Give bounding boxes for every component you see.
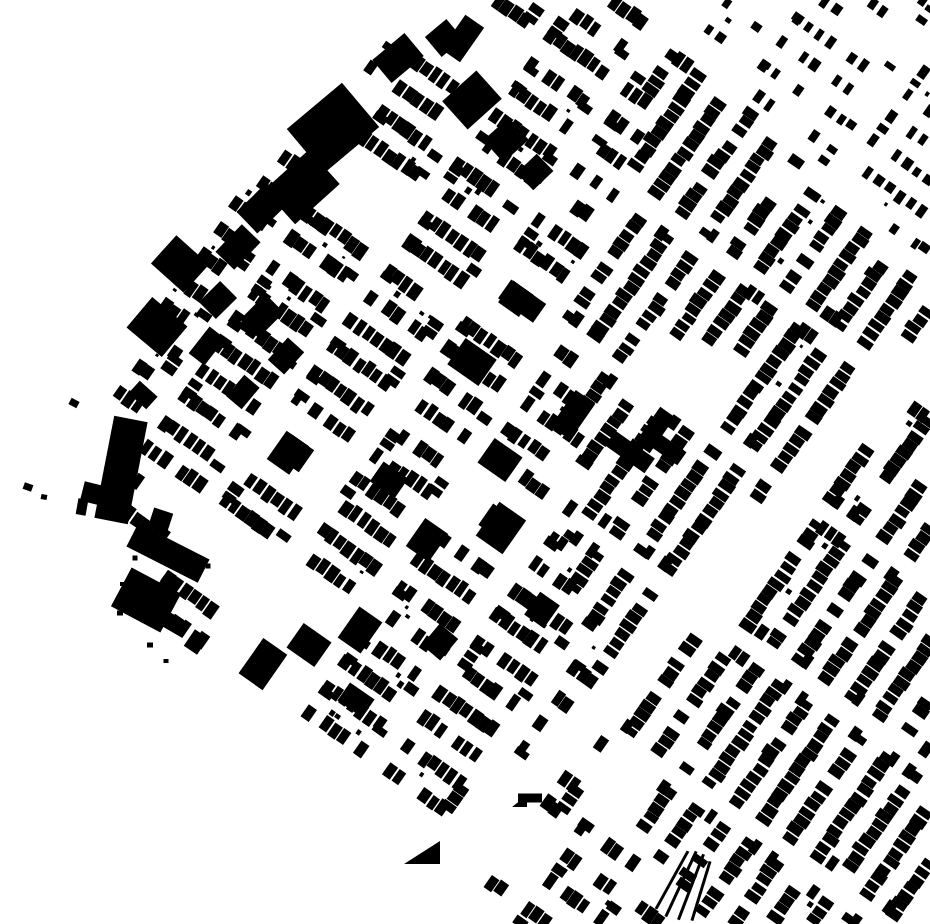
figure-ground-map (0, 0, 930, 924)
shed (211, 245, 216, 250)
house (916, 64, 930, 80)
house (630, 128, 646, 145)
house (593, 909, 610, 924)
house (924, 4, 930, 14)
house (542, 872, 559, 890)
shed (342, 256, 346, 260)
house (342, 579, 356, 595)
house (554, 635, 570, 650)
house (787, 153, 805, 170)
house (531, 212, 546, 229)
house (569, 162, 586, 180)
house (911, 166, 922, 177)
house (209, 458, 225, 473)
shed (286, 296, 291, 301)
house (457, 428, 473, 445)
house (679, 761, 695, 776)
house (842, 82, 854, 95)
shed (419, 772, 424, 778)
house (807, 129, 820, 143)
house (791, 11, 805, 25)
house (721, 0, 732, 9)
shed (393, 290, 401, 298)
house (775, 35, 788, 49)
large-building (476, 502, 526, 555)
house (902, 88, 914, 101)
house (861, 166, 874, 180)
house (597, 513, 612, 529)
house (502, 199, 519, 215)
shed (322, 242, 328, 248)
house (630, 70, 646, 85)
house (703, 443, 722, 461)
house (817, 154, 830, 166)
house (505, 694, 521, 712)
large-building (406, 518, 448, 562)
house (826, 602, 844, 619)
house (857, 58, 870, 73)
house (890, 149, 902, 162)
large-building (94, 416, 147, 525)
house (301, 704, 318, 722)
small-structure (164, 659, 169, 663)
house (826, 144, 838, 155)
house (917, 133, 929, 146)
large-building (128, 381, 157, 410)
house (845, 119, 857, 131)
shed (404, 605, 409, 610)
house (265, 260, 280, 277)
house (792, 84, 804, 97)
shed (905, 420, 912, 427)
shed (355, 729, 362, 736)
house (876, 122, 889, 135)
shed (799, 344, 803, 348)
house (589, 174, 603, 189)
large-building (338, 606, 383, 653)
shed (806, 901, 813, 909)
house (818, 0, 830, 9)
house (532, 714, 549, 732)
house (454, 544, 470, 562)
large-building (477, 438, 522, 482)
house (673, 709, 690, 725)
small-structure (120, 582, 124, 586)
house (476, 411, 493, 427)
house (593, 735, 609, 753)
house (884, 109, 898, 124)
house (653, 849, 670, 865)
house (624, 853, 641, 872)
shed (724, 17, 732, 24)
house (806, 884, 821, 900)
shed (808, 219, 814, 225)
house (606, 187, 620, 203)
house (803, 186, 822, 203)
house (803, 21, 814, 33)
house (798, 51, 810, 64)
house (796, 253, 815, 270)
house (340, 484, 357, 500)
house (770, 68, 781, 80)
shed (334, 713, 341, 720)
small-structure (133, 556, 138, 561)
large-building (239, 638, 288, 690)
house (872, 174, 886, 188)
house (703, 24, 714, 36)
large-building (151, 235, 209, 293)
house (385, 610, 402, 628)
shed (924, 91, 930, 97)
house (830, 3, 843, 17)
shed (820, 199, 825, 204)
small-structure (117, 611, 123, 616)
house (195, 363, 210, 380)
house (403, 681, 420, 697)
house (559, 118, 574, 135)
house (905, 126, 918, 140)
house (910, 78, 922, 89)
special-buildings (404, 795, 527, 864)
house (807, 57, 821, 72)
house (915, 14, 928, 26)
house (884, 181, 897, 194)
shed (567, 567, 573, 573)
house (824, 35, 837, 49)
house (752, 89, 766, 104)
house (825, 855, 840, 872)
house (915, 204, 929, 219)
shed (591, 645, 596, 650)
shed (172, 288, 177, 293)
map-canvas (0, 0, 930, 924)
shed (570, 260, 575, 265)
house (407, 665, 422, 682)
large-building (286, 623, 331, 667)
house (307, 402, 324, 420)
house (400, 738, 416, 755)
house (867, 0, 879, 10)
shed (821, 542, 829, 550)
shed (785, 588, 792, 595)
shed (464, 186, 473, 195)
house (813, 28, 825, 41)
house (562, 499, 579, 517)
house (866, 133, 879, 148)
house (901, 722, 919, 738)
small-structure (206, 564, 211, 569)
house (861, 553, 879, 570)
small-structure (76, 498, 89, 515)
house (704, 809, 718, 825)
house (845, 52, 858, 65)
shed (854, 495, 861, 502)
house (884, 61, 896, 72)
small-structure (147, 643, 153, 648)
large-building (267, 431, 309, 475)
house (923, 104, 930, 118)
house (750, 21, 762, 33)
house (520, 395, 536, 413)
shed (566, 108, 571, 113)
large-building (372, 33, 423, 83)
house (922, 173, 930, 186)
house (535, 370, 552, 388)
house (900, 156, 914, 171)
shed (777, 257, 784, 265)
house (763, 98, 775, 112)
house (369, 447, 384, 464)
shed (884, 202, 889, 207)
house (624, 332, 640, 347)
house (831, 74, 843, 87)
small-structure (41, 494, 48, 500)
house (918, 740, 930, 758)
house (353, 741, 370, 759)
house (893, 190, 907, 205)
small-structure (23, 482, 34, 492)
house (363, 290, 379, 307)
house (888, 223, 900, 235)
house (905, 197, 917, 210)
shed (775, 381, 782, 388)
house (824, 105, 837, 119)
house (591, 659, 609, 676)
house (836, 114, 847, 126)
shed (395, 672, 401, 678)
house (276, 528, 292, 543)
small-structure (68, 398, 79, 408)
shed (245, 189, 252, 197)
house (876, 5, 888, 19)
shed (359, 570, 364, 574)
shed (396, 680, 404, 689)
house (427, 148, 443, 163)
shed (419, 311, 425, 317)
house (714, 31, 727, 44)
shed (405, 614, 411, 619)
house (642, 587, 659, 602)
triangle-building (404, 841, 440, 864)
